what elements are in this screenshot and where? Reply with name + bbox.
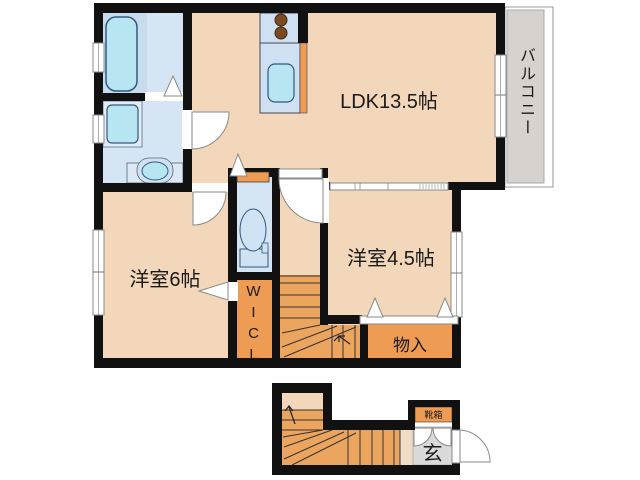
washroom-window [93,115,104,143]
bedroom45-label: 洋室4.5帖 [330,242,452,271]
wicl-label: WICL [245,283,262,367]
toilet-icon [240,209,268,267]
ldk-sliding-door [330,183,448,190]
entrance-door [452,430,490,463]
floorplan-canvas: LDK13.5帖 バルコニー 洋室6帖 洋室4.5帖 物入 WICL 玄 靴箱 [0,0,640,480]
counter-edge [300,43,307,113]
balcony-sliding-window [495,55,506,137]
first-floor-entrance [272,383,490,475]
floorplan-drawing [0,0,640,480]
washing-machine-icon [103,101,142,147]
balcony-label: バルコニー [513,47,537,137]
genkan-label: 玄 [412,437,453,466]
bedroom6-window [93,230,104,315]
bedroom6-label: 洋室6帖 [105,263,225,292]
bathtub-icon [106,17,137,91]
shoebox-label: 靴箱 [413,408,454,421]
bathroom-window [93,43,104,72]
ldk-label: LDK13.5帖 [329,85,449,114]
bedroom45-window [451,232,462,317]
kitchen-sink-icon [268,64,294,102]
storage-label: 物入 [370,331,450,356]
